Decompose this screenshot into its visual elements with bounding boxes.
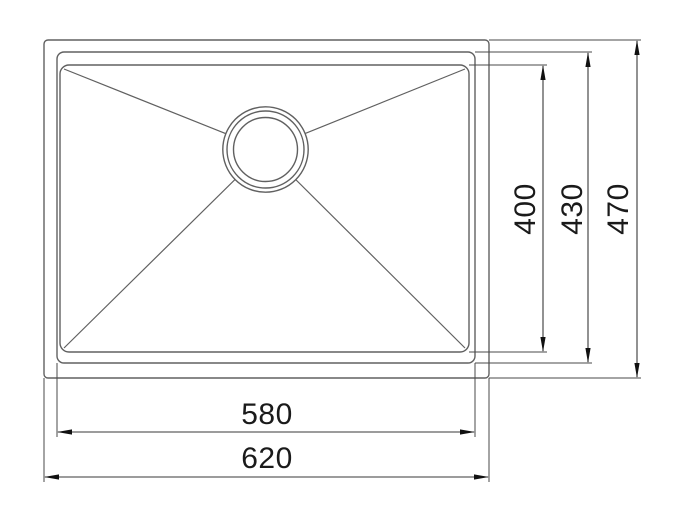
arrow-400-top: [540, 65, 545, 80]
dimension-lines: [45, 41, 637, 477]
sink-drawing-svg: [0, 0, 700, 523]
arrow-620-right: [474, 474, 489, 479]
dim-label-overall-width: 620: [241, 444, 293, 474]
arrow-470-bottom: [634, 363, 639, 378]
arrow-580-right: [460, 429, 475, 434]
arrow-430-top: [585, 52, 590, 67]
dim-label-overall-depth: 470: [604, 183, 634, 235]
technical-drawing-canvas: 400 430 470 580 620: [0, 0, 700, 523]
arrow-580-left: [57, 429, 72, 434]
arrow-620-left: [44, 474, 59, 479]
dim-label-bowl-floor-depth: 400: [511, 183, 541, 235]
extension-lines: [44, 40, 641, 482]
sink-bowl-rim-outline: [57, 52, 475, 363]
dim-label-bowl-depth: 430: [558, 183, 588, 235]
sink-outer-edge-outline: [44, 40, 489, 378]
drain-outer-circle: [223, 107, 308, 192]
sink-geometry: [44, 40, 489, 378]
arrow-400-bottom: [540, 337, 545, 352]
dim-label-bowl-width: 580: [241, 400, 293, 430]
dimension-arrowheads: [44, 40, 640, 480]
arrow-430-bottom: [585, 348, 590, 363]
arrow-470-top: [634, 40, 639, 55]
